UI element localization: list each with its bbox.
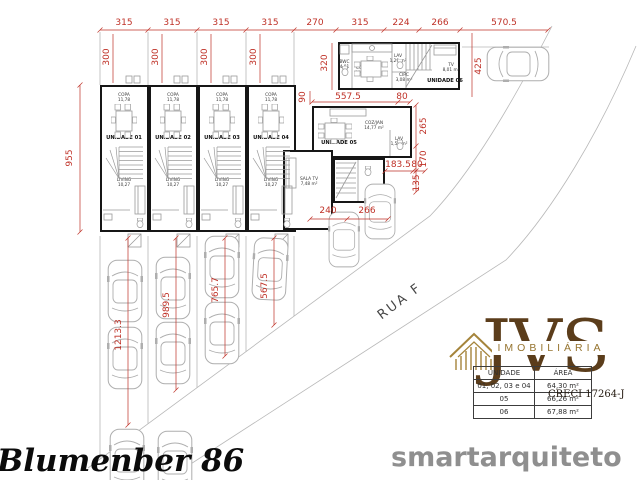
- dim-135: 135: [412, 172, 422, 194]
- dim-320: 320: [320, 54, 330, 72]
- dim-depth-955: 955: [65, 146, 75, 170]
- room-label-circ: CIRC 3,08 m²: [393, 74, 415, 84]
- col-header-area: ÁREA: [535, 367, 592, 380]
- dim-5575: 557.5: [330, 92, 366, 102]
- dim-line-lane-3: [223, 236, 228, 359]
- dim-top-4: 315: [261, 18, 278, 28]
- dim-top-7: 224: [392, 18, 409, 28]
- dim-lane-4: 567.5: [260, 269, 270, 303]
- unit-name: UNIDADE 05: [316, 140, 362, 146]
- dim-425: 425: [474, 55, 484, 77]
- room-area: 10,27: [104, 184, 144, 189]
- unit-name: UNIDADE 03: [200, 135, 244, 141]
- room-area: 1,50 m²: [388, 143, 410, 148]
- car-icon: [107, 327, 143, 389]
- car-icon: [155, 257, 191, 319]
- car-icon: [487, 46, 549, 82]
- dim-top-9: 570.5: [491, 18, 517, 28]
- dim-top-2: 315: [163, 18, 180, 28]
- car-icon: [204, 302, 240, 364]
- cell-units: 01, 02, 03 e 04: [474, 380, 535, 393]
- cell-area: 67,88 m²: [535, 406, 592, 419]
- col-header-unidade: UNIDADE: [474, 367, 535, 380]
- dim-front-300-1: 300: [102, 48, 112, 66]
- cell-units: 05: [474, 393, 535, 406]
- dim-240: 240: [311, 206, 345, 216]
- dim-line-depth-955: [78, 83, 83, 235]
- rear-stoops: [128, 234, 288, 247]
- room-label-cozjan: COZ/JAN 19,06 m²: [351, 67, 379, 77]
- dim-265: 265: [419, 115, 429, 137]
- unit-06: BWC 4,01 m² COZ/JAN 19,06 m² LAV 1,29 m²…: [338, 42, 460, 90]
- creci-number: CRECI 17264-J: [548, 389, 624, 400]
- car-icon: [250, 237, 289, 300]
- brand-subtitle: IMOBILIÁRIA: [492, 341, 610, 355]
- dim-top-6: 315: [351, 18, 368, 28]
- room-area: 11,78: [251, 99, 291, 104]
- room-label-lav: LAV 1,50 m²: [388, 138, 410, 148]
- street-name-label: RUA F: [366, 273, 434, 330]
- front-yard-lines: [100, 32, 294, 85]
- dim-top-3: 315: [212, 18, 229, 28]
- area-table-header-row: UNIDADE ÁREA: [474, 367, 592, 380]
- room-label-copa: COPA 11,78: [251, 94, 291, 104]
- room-label-bwc: BWC 4,01 m²: [338, 61, 351, 76]
- dim-90: 90: [298, 90, 308, 104]
- room-label-lav: LAV 1,29 m²: [388, 55, 408, 65]
- unit-05-wc-stairs: [333, 158, 385, 203]
- dim-front-300-2: 300: [151, 48, 161, 66]
- dim-line-lane-4: [272, 236, 277, 328]
- unit-name: UNIDADE 01: [102, 135, 146, 141]
- room-area: 10,27: [153, 184, 193, 189]
- dim-top-1: 315: [115, 18, 132, 28]
- dim-front-300-4: 300: [249, 48, 259, 66]
- unit-02: COPA 11,78 UNIDADE 02 LIVING 10,27: [149, 85, 198, 232]
- unit-05-sala-tv: SALA TV 7,48 m²: [283, 150, 333, 230]
- unit-01: COPA 11,78 UNIDADE 01 LIVING 10,27: [100, 85, 149, 232]
- unit-name: UNIDADE 04: [249, 135, 293, 141]
- watermark-logo: smartarquiteto: [391, 442, 622, 473]
- room-area: 4,01 m²: [338, 66, 351, 76]
- car-icon: [107, 260, 143, 322]
- unit-03: COPA 11,78 UNIDADE 03 LIVING 10,27: [198, 85, 247, 232]
- unit-name: UNIDADE 02: [151, 135, 195, 141]
- dim-ticks-top: [98, 28, 551, 33]
- dim-266: 266: [349, 206, 385, 216]
- dim-line-lane-1: [126, 236, 131, 428]
- room-label-cozjan: COZ/JAN 14,77 m²: [360, 122, 388, 132]
- car-icon: [204, 236, 240, 298]
- room-area: 11,78: [104, 99, 144, 104]
- room-area: 7,48 m²: [295, 183, 323, 188]
- room-label-living: LIVING 10,27: [202, 179, 242, 189]
- site-plan-canvas: COPA 11,78 UNIDADE 01 LIVING 10,27 COPA …: [0, 0, 640, 480]
- dim-top-5: 270: [306, 18, 323, 28]
- room-label-living: LIVING 10,27: [153, 179, 193, 189]
- room-area: 10,27: [202, 184, 242, 189]
- dim-front-300-3: 300: [200, 48, 210, 66]
- car-icon: [155, 322, 191, 384]
- room-label-living: LIVING 10,27: [104, 179, 144, 189]
- unit-name: UNIDADE 06: [425, 78, 465, 84]
- dim-lane-2: 989.5: [162, 288, 172, 322]
- front-party-walls: [100, 32, 294, 85]
- room-label-sala-tv: SALA TV 7,48 m²: [295, 178, 323, 188]
- room-area: 11,78: [153, 99, 193, 104]
- dim-top-8: 266: [431, 18, 448, 28]
- room-label-tv: TV 8,01 m²: [440, 64, 462, 74]
- area-table-row: 06 67,88 m²: [474, 406, 592, 419]
- room-label-copa: COPA 11,78: [104, 94, 144, 104]
- room-label-copa: COPA 11,78: [202, 94, 242, 104]
- dim-lane-3: 765.7: [211, 273, 221, 307]
- room-area: 11,78: [202, 99, 242, 104]
- front-gates: [126, 76, 286, 83]
- dim-80-top: 80: [394, 92, 410, 102]
- cell-units: 06: [474, 406, 535, 419]
- room-area: 1,29 m²: [388, 60, 408, 65]
- room-area: 3,08 m²: [393, 79, 415, 84]
- room-area: 14,77 m²: [360, 127, 388, 132]
- dim-80-mid: 80: [409, 160, 425, 170]
- room-area: 19,06 m²: [351, 72, 379, 77]
- dim-lane-1: 1213.3: [114, 315, 124, 355]
- room-area: 8,01 m²: [440, 69, 462, 74]
- dim-lines-front-300: [113, 34, 260, 83]
- project-title: Blumenber 86: [0, 443, 244, 479]
- room-label-copa: COPA 11,78: [153, 94, 193, 104]
- dim-line-lane-2: [174, 236, 179, 393]
